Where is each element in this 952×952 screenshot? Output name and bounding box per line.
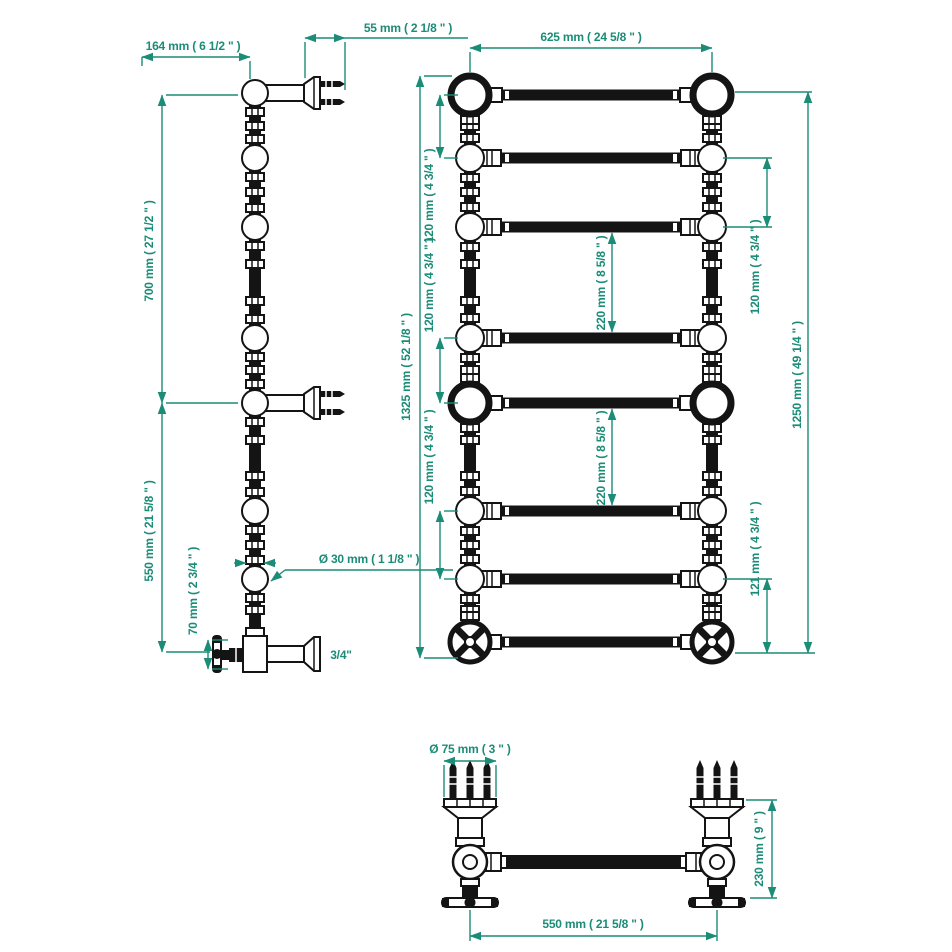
towel-rail-linework (0, 0, 952, 952)
side-view (212, 77, 345, 672)
dim-gap-120-2: 120 mm ( 4 3/4 " ) (422, 238, 436, 333)
dim-overall-height: 1325 mm ( 52 1/8 " ) (399, 313, 413, 421)
side-bottom-valve-assembly (212, 628, 320, 672)
dim-gap-120-4: 120 mm ( 4 3/4 " ) (748, 220, 762, 315)
dim-wall-fixing-length: 55 mm ( 2 1/8 " ) (364, 21, 452, 35)
dim-wall-to-front: 230 mm ( 9 " ) (752, 811, 766, 887)
dim-fixing-centres: 550 mm ( 21 5/8 " ) (542, 917, 643, 931)
dim-gap-120-3: 120 mm ( 4 3/4 " ) (422, 410, 436, 505)
dim-gap-220-2: 220 mm ( 8 5/8 " ) (594, 411, 608, 506)
dim-rail-height: 1250 mm ( 49 1/4 " ) (790, 321, 804, 429)
dim-gap-220-1: 220 mm ( 8 5/8 " ) (594, 236, 608, 331)
technical-drawing-page: 164 mm ( 6 1/2 " ) 55 mm ( 2 1/8 " ) 625… (0, 0, 952, 952)
front-view (450, 76, 732, 662)
dim-bracket-projection: 164 mm ( 6 1/2 " ) (146, 39, 241, 53)
dim-gap-120-1: 120 mm ( 4 3/4 " ) (422, 149, 436, 244)
dim-overall-width: 625 mm ( 24 5/8 " ) (540, 30, 641, 44)
dim-lower-bracket-spacing: 550 mm ( 21 5/8 " ) (142, 480, 156, 581)
dim-upper-bracket-spacing: 700 mm ( 27 1/2 " ) (142, 200, 156, 301)
dim-connection-thread: 3/4" (330, 648, 352, 662)
dim-valve-drop: 70 mm ( 2 3/4 " ) (186, 547, 200, 635)
dim-gap-121: 121 mm ( 4 3/4 " ) (748, 502, 762, 597)
dim-tube-diameter: Ø 30 mm ( 1 1/8 " ) (319, 552, 420, 566)
dim-flange-diameter: Ø 75 mm ( 3 " ) (429, 742, 510, 756)
plan-view (442, 760, 745, 908)
